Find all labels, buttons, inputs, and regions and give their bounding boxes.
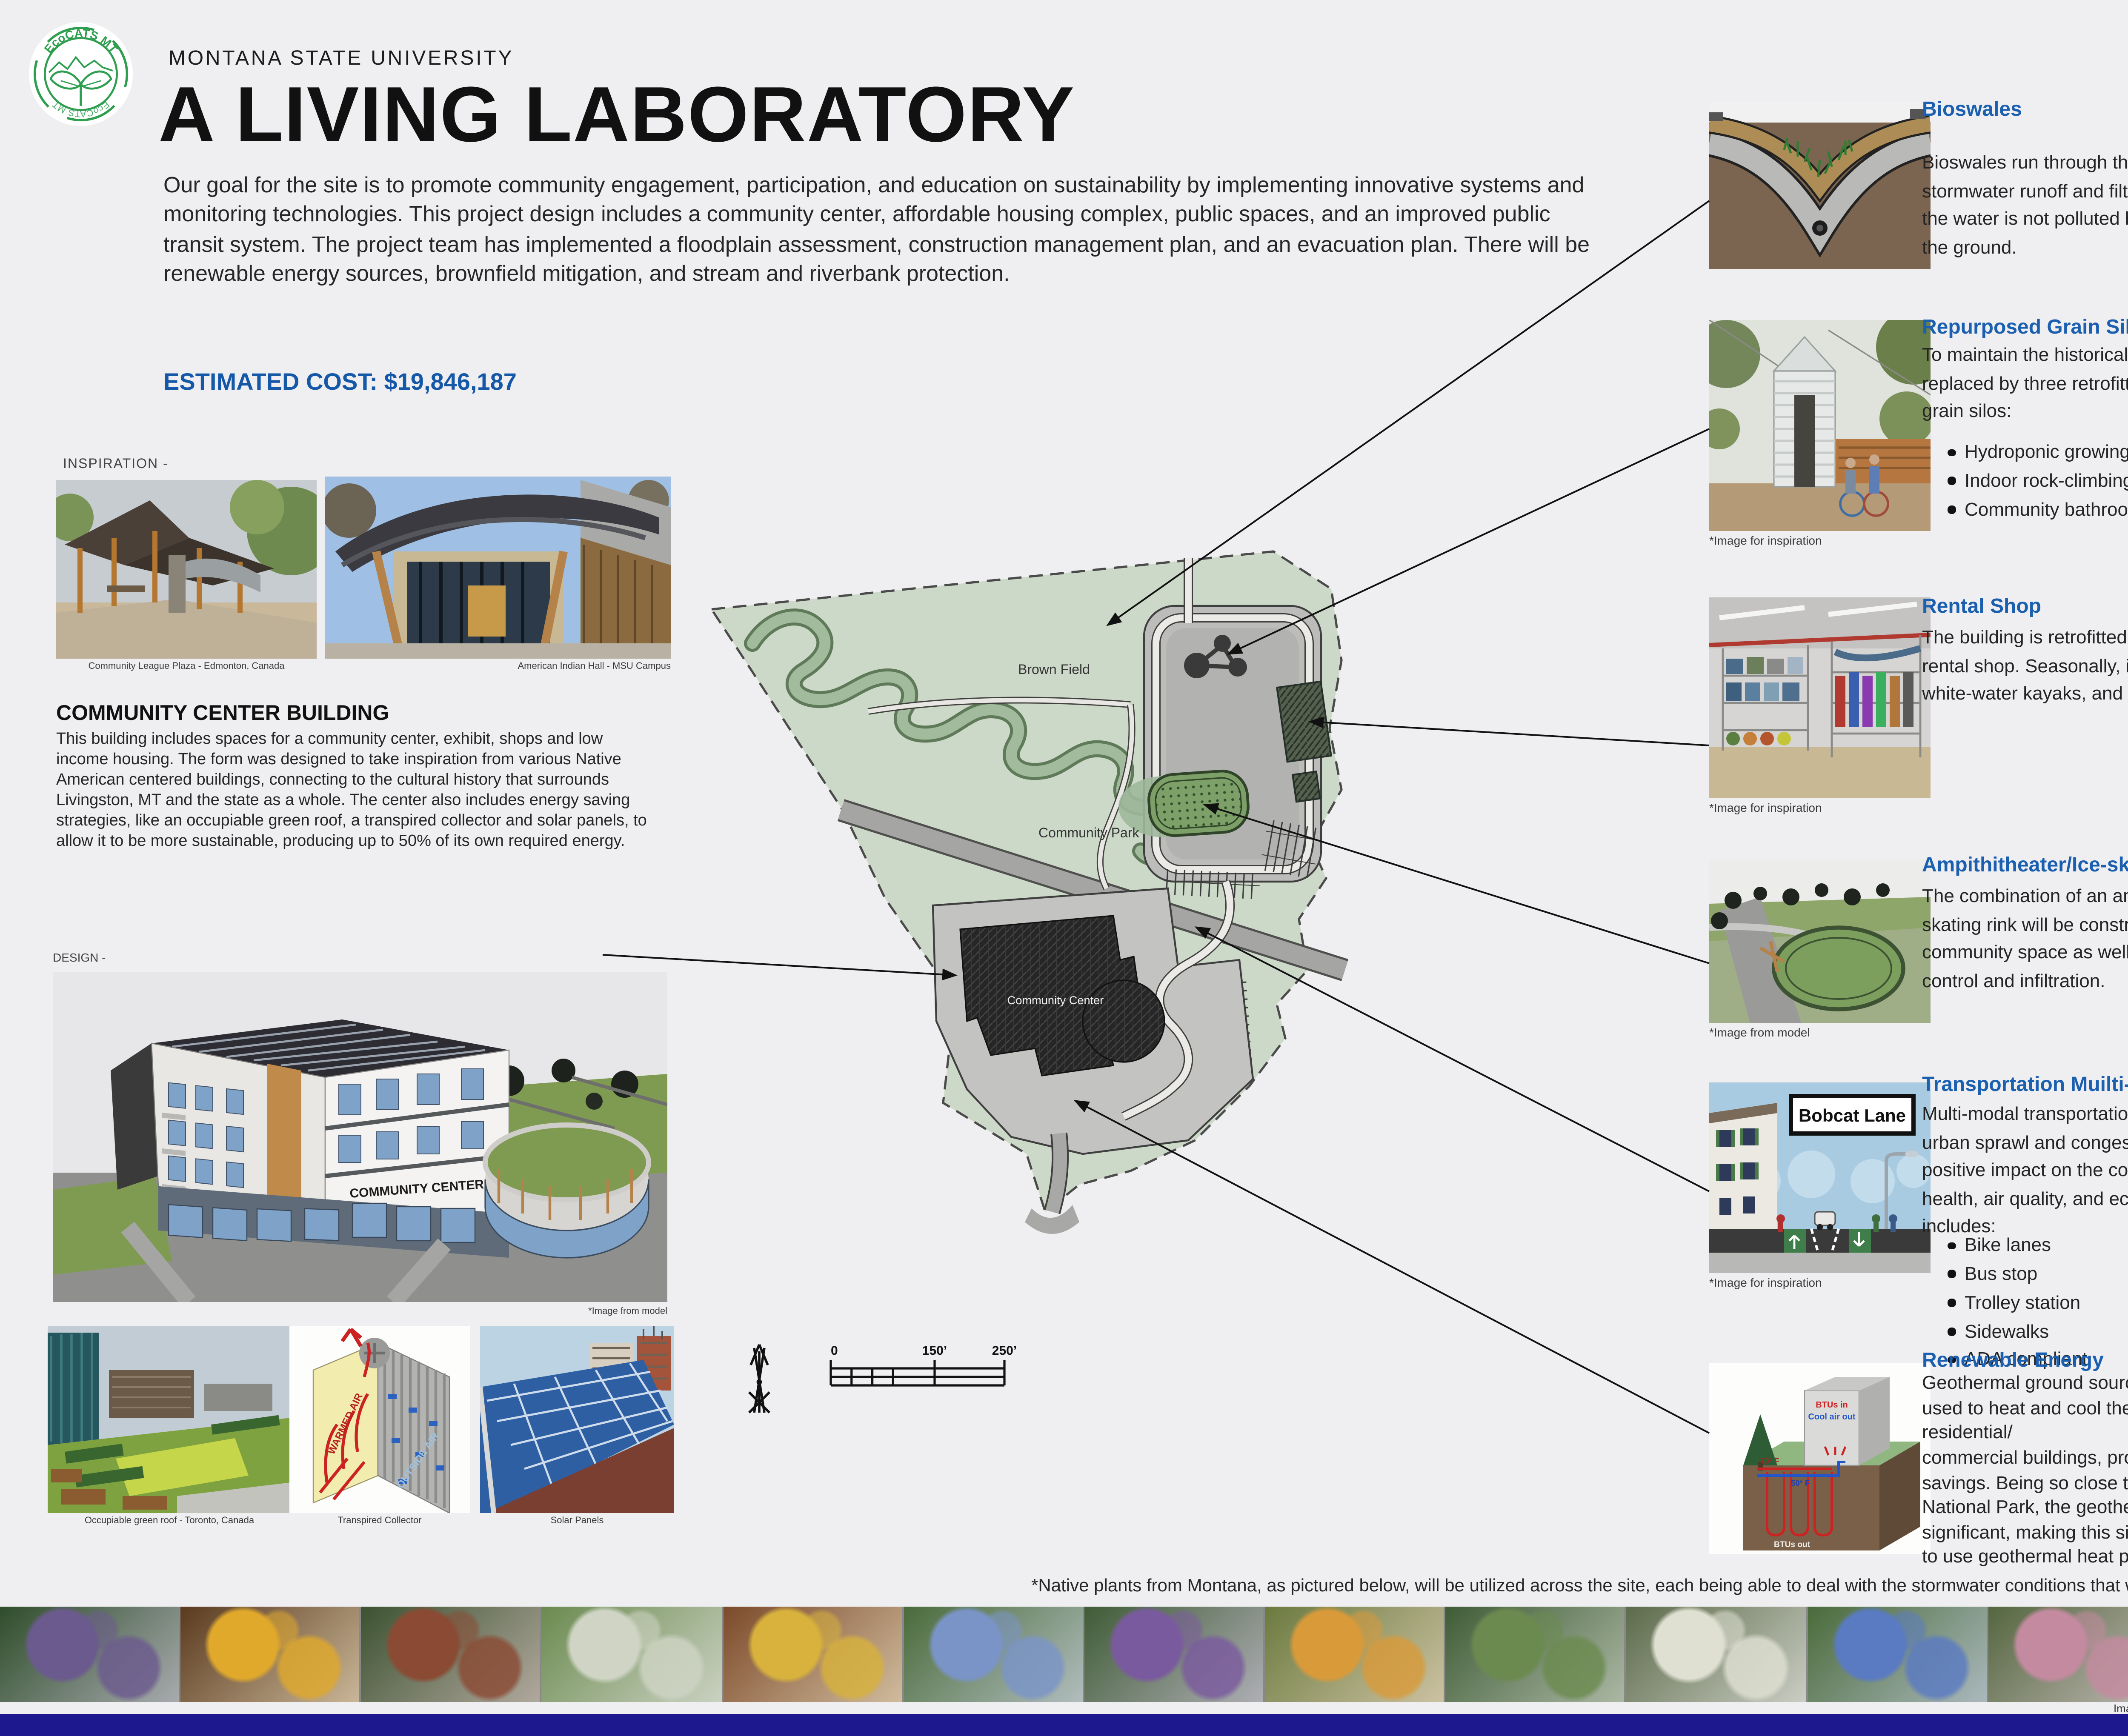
scale-250: 250’ <box>992 1344 1017 1358</box>
photo-caption-solar: Solar Panels <box>480 1516 674 1527</box>
green-roof-photo <box>48 1326 291 1513</box>
bioswale-diagram <box>1709 102 1931 269</box>
bullet-item: Trolley station <box>1948 1291 2128 1316</box>
inspiration-caption-left: Community League Plaza - Edmonton, Canad… <box>56 662 317 672</box>
section-body-bioswales: Bioswales run through the site to help m… <box>1922 150 2128 262</box>
plant-photo-tile <box>1446 1607 1627 1702</box>
plant-photo-tile <box>1627 1607 1808 1702</box>
rental-image-caption: *Image for inspiration <box>1709 803 1822 815</box>
university-name: MONTANA STATE UNIVERSITY <box>169 46 514 70</box>
inspiration-caption-right: American Indian Hall - MSU Campus <box>325 662 671 672</box>
section-title-silos: Repurposed Grain Silos <box>1922 315 2128 339</box>
poster: EcoCATS MT EcoCATS MT MONTANA STATE UNIV… <box>0 0 2128 1736</box>
photo-caption-green-roof: Occupiable green roof - Toronto, Canada <box>48 1516 291 1527</box>
silos-bullet-list: Hydroponic growing system greenhouseIndo… <box>1948 441 2128 527</box>
community-center-heading: COMMUNITY CENTER BUILDING <box>56 701 389 725</box>
section-title-transportation: Transportation Muilti-modal Overview <box>1922 1072 2128 1096</box>
design-label: DESIGN - <box>53 953 106 965</box>
intro-paragraph: Our goal for the site is to promote comm… <box>163 170 1610 289</box>
ecocats-logo: EcoCATS MT EcoCATS MT <box>27 20 134 128</box>
section-title-renewable: Renewable Energy <box>1922 1348 2104 1372</box>
plant-photo-tile <box>0 1607 181 1702</box>
bullet-item: Indoor rock-climbing wall <box>1948 469 2128 494</box>
photo-caption-collector: Transpired Collector <box>289 1516 470 1527</box>
section-body-silos: To maintain the historical image, the si… <box>1922 342 2128 426</box>
grain-silo-photo <box>1709 320 1931 531</box>
inspiration-photo-indian-hall <box>325 477 671 659</box>
plant-photo-tile <box>1084 1607 1265 1702</box>
bullet-item: Community bathroom <box>1948 498 2128 523</box>
section-title-bioswales: Bioswales <box>1922 97 2022 121</box>
community-center-body: This building includes spaces for a comm… <box>56 730 659 854</box>
scale-0: 0 <box>831 1344 838 1358</box>
transpired-collector-diagram: WARMED AIR OUTSIDE AIR <box>289 1326 470 1513</box>
silos-image-caption: *Image for inspiration <box>1709 536 1822 548</box>
bobcat-lane-sign: Bobcat Lane <box>1799 1105 1906 1125</box>
map-label-community-park: Community Park <box>1038 825 1140 840</box>
scale-bar: 0 150’ 250’ <box>831 1344 1017 1385</box>
ice-rink-shape <box>1147 769 1250 837</box>
plant-photo-tile <box>542 1607 723 1702</box>
image-source-credit: Image Source: https://mtnativeplants.org… <box>1736 1703 2128 1715</box>
bullet-item: Bike lanes <box>1948 1234 2128 1259</box>
section-body-renewable: Geothermal ground source heat pumps are … <box>1922 1372 2128 1571</box>
geo-btus-in-label: BTUs in <box>1816 1400 1848 1410</box>
north-arrow <box>749 1345 769 1413</box>
rental-shop-photo <box>1709 597 1931 798</box>
bullet-item: Sidewalks <box>1948 1320 2128 1345</box>
plant-photo-tile <box>723 1607 904 1702</box>
geo-50f-label: 50° F <box>1791 1479 1810 1488</box>
map-label-community-center: Community Center <box>1007 994 1104 1007</box>
plant-photo-tile <box>181 1607 362 1702</box>
plant-photo-tile <box>361 1607 542 1702</box>
inspiration-label: INSPIRATION - <box>63 456 169 471</box>
poster-title: A LIVING LABORATORY <box>158 68 1075 160</box>
design-model-image: COMMUNITY CENTER <box>53 972 667 1302</box>
scale-150: 150’ <box>922 1344 947 1358</box>
bullet-item: Hydroponic growing system greenhouse <box>1948 441 2128 466</box>
geo-btus-out-label: BTUs out <box>1774 1540 1811 1549</box>
transportation-image-caption: *Image for inspiration <box>1709 1278 1822 1290</box>
bullet-item: Bus stop <box>1948 1262 2128 1288</box>
section-body-amphitheater: The combination of an amphitheater and i… <box>1922 883 2128 996</box>
geothermal-diagram: BTUs in Cool air out 70° F 50° F BTUs ou… <box>1709 1363 1931 1554</box>
transportation-diagram: Bobcat Lane <box>1709 1082 1931 1273</box>
geo-70f-label: 70° F <box>1760 1456 1779 1465</box>
plant-photo-tile <box>904 1607 1084 1702</box>
estimated-cost: ESTIMATED COST: $19,846,187 <box>163 368 517 395</box>
plant-photo-tile <box>1807 1607 1988 1702</box>
amphitheater-image-caption: *Image from model <box>1709 1028 1810 1040</box>
geo-cool-air-label: Cool air out <box>1808 1412 1855 1422</box>
section-body-transportation: Multi-modal transportation systems reduc… <box>1922 1101 2128 1242</box>
native-plants-photo-strip <box>0 1607 2128 1702</box>
inspiration-photo-pavilion <box>56 480 317 659</box>
section-title-amphitheater: Ampithitheater/Ice-skating Rink <box>1922 853 2128 877</box>
bottom-navy-bar <box>0 1714 2128 1736</box>
solar-panels-photo <box>480 1326 674 1513</box>
design-model-caption: *Image from model <box>340 1307 667 1317</box>
amphitheater-model-image <box>1709 859 1931 1023</box>
site-plan-map: Brown Field Community Park Community Cen… <box>678 538 1605 1491</box>
plant-photo-tile <box>1265 1607 1446 1702</box>
native-plants-note: *Native plants from Montana, as pictured… <box>885 1576 2128 1596</box>
section-body-rental: The building is retrofitted and reused a… <box>1922 625 2128 709</box>
map-label-brown-field: Brown Field <box>1018 662 1090 677</box>
plant-photo-tile <box>1988 1607 2128 1702</box>
section-title-rental: Rental Shop <box>1922 594 2041 618</box>
